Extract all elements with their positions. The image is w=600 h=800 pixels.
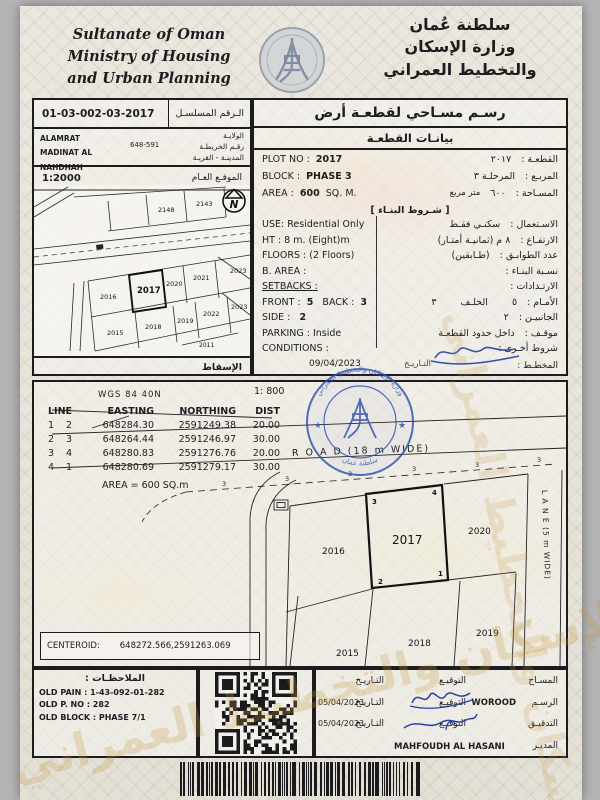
header-line-ar-1: سلطنة عُمان: [360, 14, 560, 36]
wilaya-label: الولايـة: [166, 131, 244, 142]
surveyor-signature-label: التوقيـع: [439, 676, 466, 686]
survey-plot-2017: 2017: [392, 533, 423, 547]
overview-plot-label: 2021: [193, 274, 210, 282]
parking-value-ar: داخل حدود القطعـة: [438, 328, 514, 339]
manager-name: MAHFOUDH AL HASANI: [394, 742, 505, 752]
front-back-row: FRONT : 5 BACK : 3 الأمـام :٥الخلـف٣: [254, 297, 566, 313]
overview-plot-label: 2011: [199, 342, 214, 349]
north-letter: N: [230, 199, 239, 211]
overview-location-map: 2148 2143 2016 2017 2020 2021 2023 2015 …: [34, 185, 250, 356]
cell: 20.00: [236, 420, 280, 431]
floors-label-ar: عدد الطوابـق :: [500, 250, 558, 261]
checker-role-label: التدقيـق: [528, 719, 558, 729]
datum-label: WGS 84 40N: [98, 390, 162, 400]
ministry-title-arabic: سلطنة عُمان وزارة الإسكان والتخطيط العمر…: [360, 14, 560, 81]
serial-number-row: 01-03-002-03-2017 الـرقم المسلسـل: [34, 100, 250, 129]
cell: 2: [60, 420, 78, 431]
setback-mark: 3: [537, 456, 541, 464]
draughtsman-role-label: الرسـم: [532, 698, 558, 708]
coordinates-row: 34 648280.832591276.7620.00: [42, 448, 280, 462]
qr-cell: [198, 668, 314, 758]
document-paper: وزارة الإسكان والتخطيط العمراني وزارة ال…: [20, 6, 582, 800]
area-unit-en: SQ. M.: [326, 188, 357, 199]
projection-footer: الإسقاط: [34, 356, 250, 376]
block-value: PHASE 3: [306, 171, 352, 182]
draughtsman-name: WOROOD: [471, 698, 516, 708]
block-label-en: BLOCK :: [262, 171, 300, 182]
plot-no-label-ar: القطعـة :: [521, 154, 558, 165]
overview-plot-label: 2016: [100, 293, 117, 301]
panel-divider-line: [376, 216, 377, 348]
plot-data-panel: رسـم مسـاحي لقطعـة أرض بيانـات القطعـة P…: [252, 98, 568, 376]
front-value-ar: ٥: [512, 297, 517, 308]
cell: 3: [60, 434, 78, 445]
draughtsman-date-value: 05/04/2023: [318, 698, 364, 707]
surveyor-date-label: التـاريـخ: [355, 676, 384, 686]
side-en: SIDE :: [262, 312, 290, 323]
town-value: MADINAT AL NAHDHAH: [40, 146, 130, 175]
cell: 2591279.17: [154, 462, 236, 473]
panel-subtitle: بيانـات القطعـة: [254, 128, 566, 150]
parking-en: PARKING : Inside: [262, 328, 341, 339]
side-value: 2: [299, 312, 306, 323]
back-value-ar: ٣: [431, 297, 436, 308]
front-value: 5: [307, 297, 314, 308]
side-value-ar: ٢: [504, 312, 509, 323]
col-easting: EASTING: [78, 406, 154, 417]
north-arrow-icon: N: [223, 190, 245, 213]
manager-role-label: المديـر: [533, 741, 558, 751]
area-unit-ar: متر مربع: [450, 188, 481, 199]
setback-mark: 3: [285, 475, 289, 483]
overview-plot-label: 2015: [107, 329, 124, 337]
area-label-ar: المسـاحة :: [516, 188, 558, 199]
cell: 1: [42, 420, 60, 431]
col-northing: NORTHING: [154, 406, 236, 417]
survey-section: 3 3 3 3 3 3 R O A D (18 m WIDE) L A N E …: [32, 380, 568, 668]
overview-scale-value: 1:2000: [34, 173, 184, 184]
floors-value-ar: (طـابقين): [451, 250, 489, 261]
cell: 20.00: [236, 448, 280, 459]
overview-plot-label: 2020: [166, 280, 183, 288]
building-area-en: B. AREA :: [262, 266, 306, 277]
corner-label-1: 1: [438, 570, 443, 578]
back-value: 3: [360, 297, 367, 308]
checker-signature: [402, 710, 478, 734]
block-row: BLOCK : PHASE 3 المربـع :المرحلـة ٣: [254, 171, 566, 188]
col-line: LINE: [42, 406, 78, 417]
overview-plot-label: 2148: [158, 206, 175, 214]
planner-label: المخطـط :: [517, 361, 558, 371]
survey-plot-2016: 2016: [322, 547, 345, 557]
building-area-row: B. AREA : نسـبة البنـاء :: [254, 266, 566, 282]
header-line-en-3: and Urban Planning: [44, 68, 254, 90]
area-row: AREA : 600 SQ. M. المسـاحة :٦٠٠متر مربع: [254, 188, 566, 205]
signature-table: المسـاح التوقيـع التـاريـخ الرسـم WOROOD…: [314, 668, 568, 758]
cell: 2: [42, 434, 60, 445]
town-label: المدينـة - القريـة: [166, 153, 244, 164]
corner-label-2: 2: [378, 578, 383, 586]
plot-no-value-ar: ٢٠١٧: [491, 154, 511, 165]
conditions-en: CONDITIONS :: [262, 343, 329, 354]
cell: 2591249.38: [154, 420, 236, 431]
panel-title: رسـم مسـاحي لقطعـة أرض: [254, 100, 566, 128]
qr-code: [213, 672, 299, 754]
centroid-box: CENTEROID: 648272.566,2591263.069: [40, 632, 260, 660]
setback-mark: 3: [475, 461, 479, 469]
notes-box: الملاحظـات : OLD PAIN : 1-43-092-01-282 …: [32, 668, 198, 758]
old-pain-line: OLD PAIN : 1-43-092-01-282: [39, 687, 196, 699]
survey-plot-2018: 2018: [408, 639, 431, 649]
corner-label-4: 4: [432, 489, 437, 497]
area-note: AREA = 600 SQ.m: [42, 476, 280, 491]
notes-heading: الملاحظـات :: [34, 670, 196, 684]
plot-no-row: PLOT NO : 2017 القطعـة :٢٠١٧: [254, 154, 566, 171]
cell: 3: [42, 448, 60, 459]
map-number-label: رقـم الخريطـة: [166, 142, 244, 153]
stamp-star-icon: ★: [314, 421, 322, 431]
draughtsman-signature: [408, 687, 474, 711]
planner-signature: [429, 340, 521, 366]
barcode: [180, 762, 420, 796]
cell: 648280.69: [78, 462, 154, 473]
centroid-value: 648272.566,2591263.069: [100, 641, 231, 651]
survey-scale-label: 1: 800: [254, 386, 284, 397]
use-en: USE: Residential Only: [262, 219, 364, 230]
block-value-ar: المرحلـة ٣: [474, 171, 515, 182]
projection-label: الإسقاط: [194, 362, 250, 373]
building-area-label-ar: نسـبة البنـاء :: [505, 266, 558, 277]
map-number-value: 648-591: [130, 129, 166, 165]
front-label-ar: الأمـام :: [527, 297, 558, 308]
block-label-ar: المربـع :: [525, 171, 558, 182]
corner-label-3: 3: [372, 498, 377, 506]
building-conditions-header: [ شـروط البنـاء ]: [254, 205, 566, 219]
height-value-ar: ٨ م (ثمانيـة أمتـار): [438, 235, 511, 246]
use-label-ar: الاسـتعمال :: [510, 219, 558, 230]
oman-national-emblem-icon: [258, 26, 326, 98]
cell: 4: [42, 462, 60, 473]
overview-plot-label: 2019: [177, 317, 194, 325]
coordinates-row: 12 648284.302591249.3820.00: [42, 420, 280, 434]
overview-plot-label: 2018: [145, 323, 162, 331]
overview-plot-label: 2143: [196, 200, 213, 208]
area-value: 600: [300, 188, 320, 199]
plot-no-label-en: PLOT NO :: [262, 154, 310, 165]
use-row: USE: Residential Only الاسـتعمال :سكنـي …: [254, 219, 566, 235]
serial-number-label: الـرقم المسلسـل: [168, 100, 250, 127]
height-label-ar: الارتفـاع :: [520, 235, 558, 246]
area-value-ar: ٦٠٠: [490, 188, 505, 199]
lane-label: L A N E (5 m WIDE): [540, 490, 552, 580]
survey-plot-2020: 2020: [468, 527, 491, 537]
front-en: FRONT :: [262, 297, 301, 308]
height-row: HT : 8 m. (Eight)m الارتفـاع :٨ م (ثماني…: [254, 235, 566, 251]
scanned-document-photo: وزارة الإسكان والتخطيط العمراني وزارة ال…: [0, 0, 600, 800]
old-block-line: OLD BLOCK : PHASE 7/1: [39, 712, 196, 724]
ministry-title-english: Sultanate of Oman Ministry of Housing an…: [44, 24, 254, 89]
overview-plot-label: 2022: [203, 310, 220, 318]
cell: 648264.44: [78, 434, 154, 445]
wilaya-value: ALAMRAT: [40, 132, 130, 146]
height-en: HT : 8 m. (Eight)m: [262, 235, 350, 246]
setbacks-en: SETBACKS :: [262, 281, 318, 292]
plot-no-value: 2017: [316, 154, 342, 165]
header-line-ar-3: والتخطيط العمراني: [360, 59, 560, 81]
coordinates-row: 23 648264.442591246.9730.00: [42, 434, 280, 448]
survey-plot-2015: 2015: [336, 649, 359, 659]
wilaya-row: ALAMRAT MADINAT AL NAHDHAH 648-591 الولا…: [34, 129, 250, 167]
cell: 648280.83: [78, 448, 154, 459]
overview-scale-label: الموقـع العـام: [184, 173, 250, 183]
header-line-en-2: Ministry of Housing: [44, 46, 254, 68]
cell: 1: [60, 462, 78, 473]
cell: 2591246.97: [154, 434, 236, 445]
overview-plot-label: 2023: [230, 267, 247, 275]
cell: 30.00: [236, 434, 280, 445]
cell: 4: [60, 448, 78, 459]
checker-row: التدقيـق التوقيـع التـاريـخ 05/04/2023: [316, 714, 566, 736]
side-label-ar: الجانبيـن :: [519, 312, 558, 323]
setbacks-label-ar: الارتـدادات :: [510, 281, 558, 292]
header-line-en-1: Sultanate of Oman: [44, 24, 254, 46]
cell: 30.00: [236, 462, 280, 473]
checker-date-value: 05/04/2023: [318, 719, 364, 728]
cell: 648284.30: [78, 420, 154, 431]
floors-row: FLOORS : (2 Floors) عدد الطوابـق :(طـابق…: [254, 250, 566, 266]
header-line-ar-2: وزارة الإسكان: [360, 36, 560, 58]
manager-row: المديـر MAHFOUDH AL HASANI: [316, 736, 566, 758]
use-value-ar: سكنـي فقـط: [449, 219, 500, 230]
cell: 2591276.76: [154, 448, 236, 459]
ministry-round-stamp: وزارة الإسكان والتخطيط العمراني سلطنة عم…: [302, 364, 418, 480]
serial-location-box: 01-03-002-03-2017 الـرقم المسلسـل ALAMRA…: [32, 98, 252, 376]
parking-label-ar: موقـف :: [525, 328, 558, 339]
back-label-ar: الخلـف: [461, 297, 488, 308]
floors-en: FLOORS : (2 Floors): [262, 250, 354, 261]
centroid-label: CENTEROID:: [41, 641, 100, 651]
area-label-en: AREA :: [262, 188, 294, 199]
back-en: BACK :: [322, 297, 354, 308]
serial-number-value: 01-03-002-03-2017: [34, 108, 168, 120]
coordinates-table-header: LINE EASTING NORTHING DIST: [42, 406, 280, 420]
setbacks-row: SETBACKS : الارتـدادات :: [254, 281, 566, 297]
survey-plot-2019: 2019: [476, 629, 499, 639]
col-dist: DIST: [236, 406, 280, 417]
stamp-star-icon: ★: [398, 421, 406, 431]
overview-plot-label-subject: 2017: [137, 286, 161, 296]
coordinates-table: LINE EASTING NORTHING DIST 12 648284.302…: [42, 406, 280, 491]
overview-plot-label: 2023: [231, 303, 248, 311]
surveyor-role-label: المسـاح: [528, 676, 558, 686]
side-row: SIDE : 2 الجانبيـن :٢: [254, 312, 566, 328]
old-plot-line: OLD P. NO : 282: [39, 699, 196, 711]
coordinates-row: 41 648280.692591279.1730.00: [42, 462, 280, 476]
